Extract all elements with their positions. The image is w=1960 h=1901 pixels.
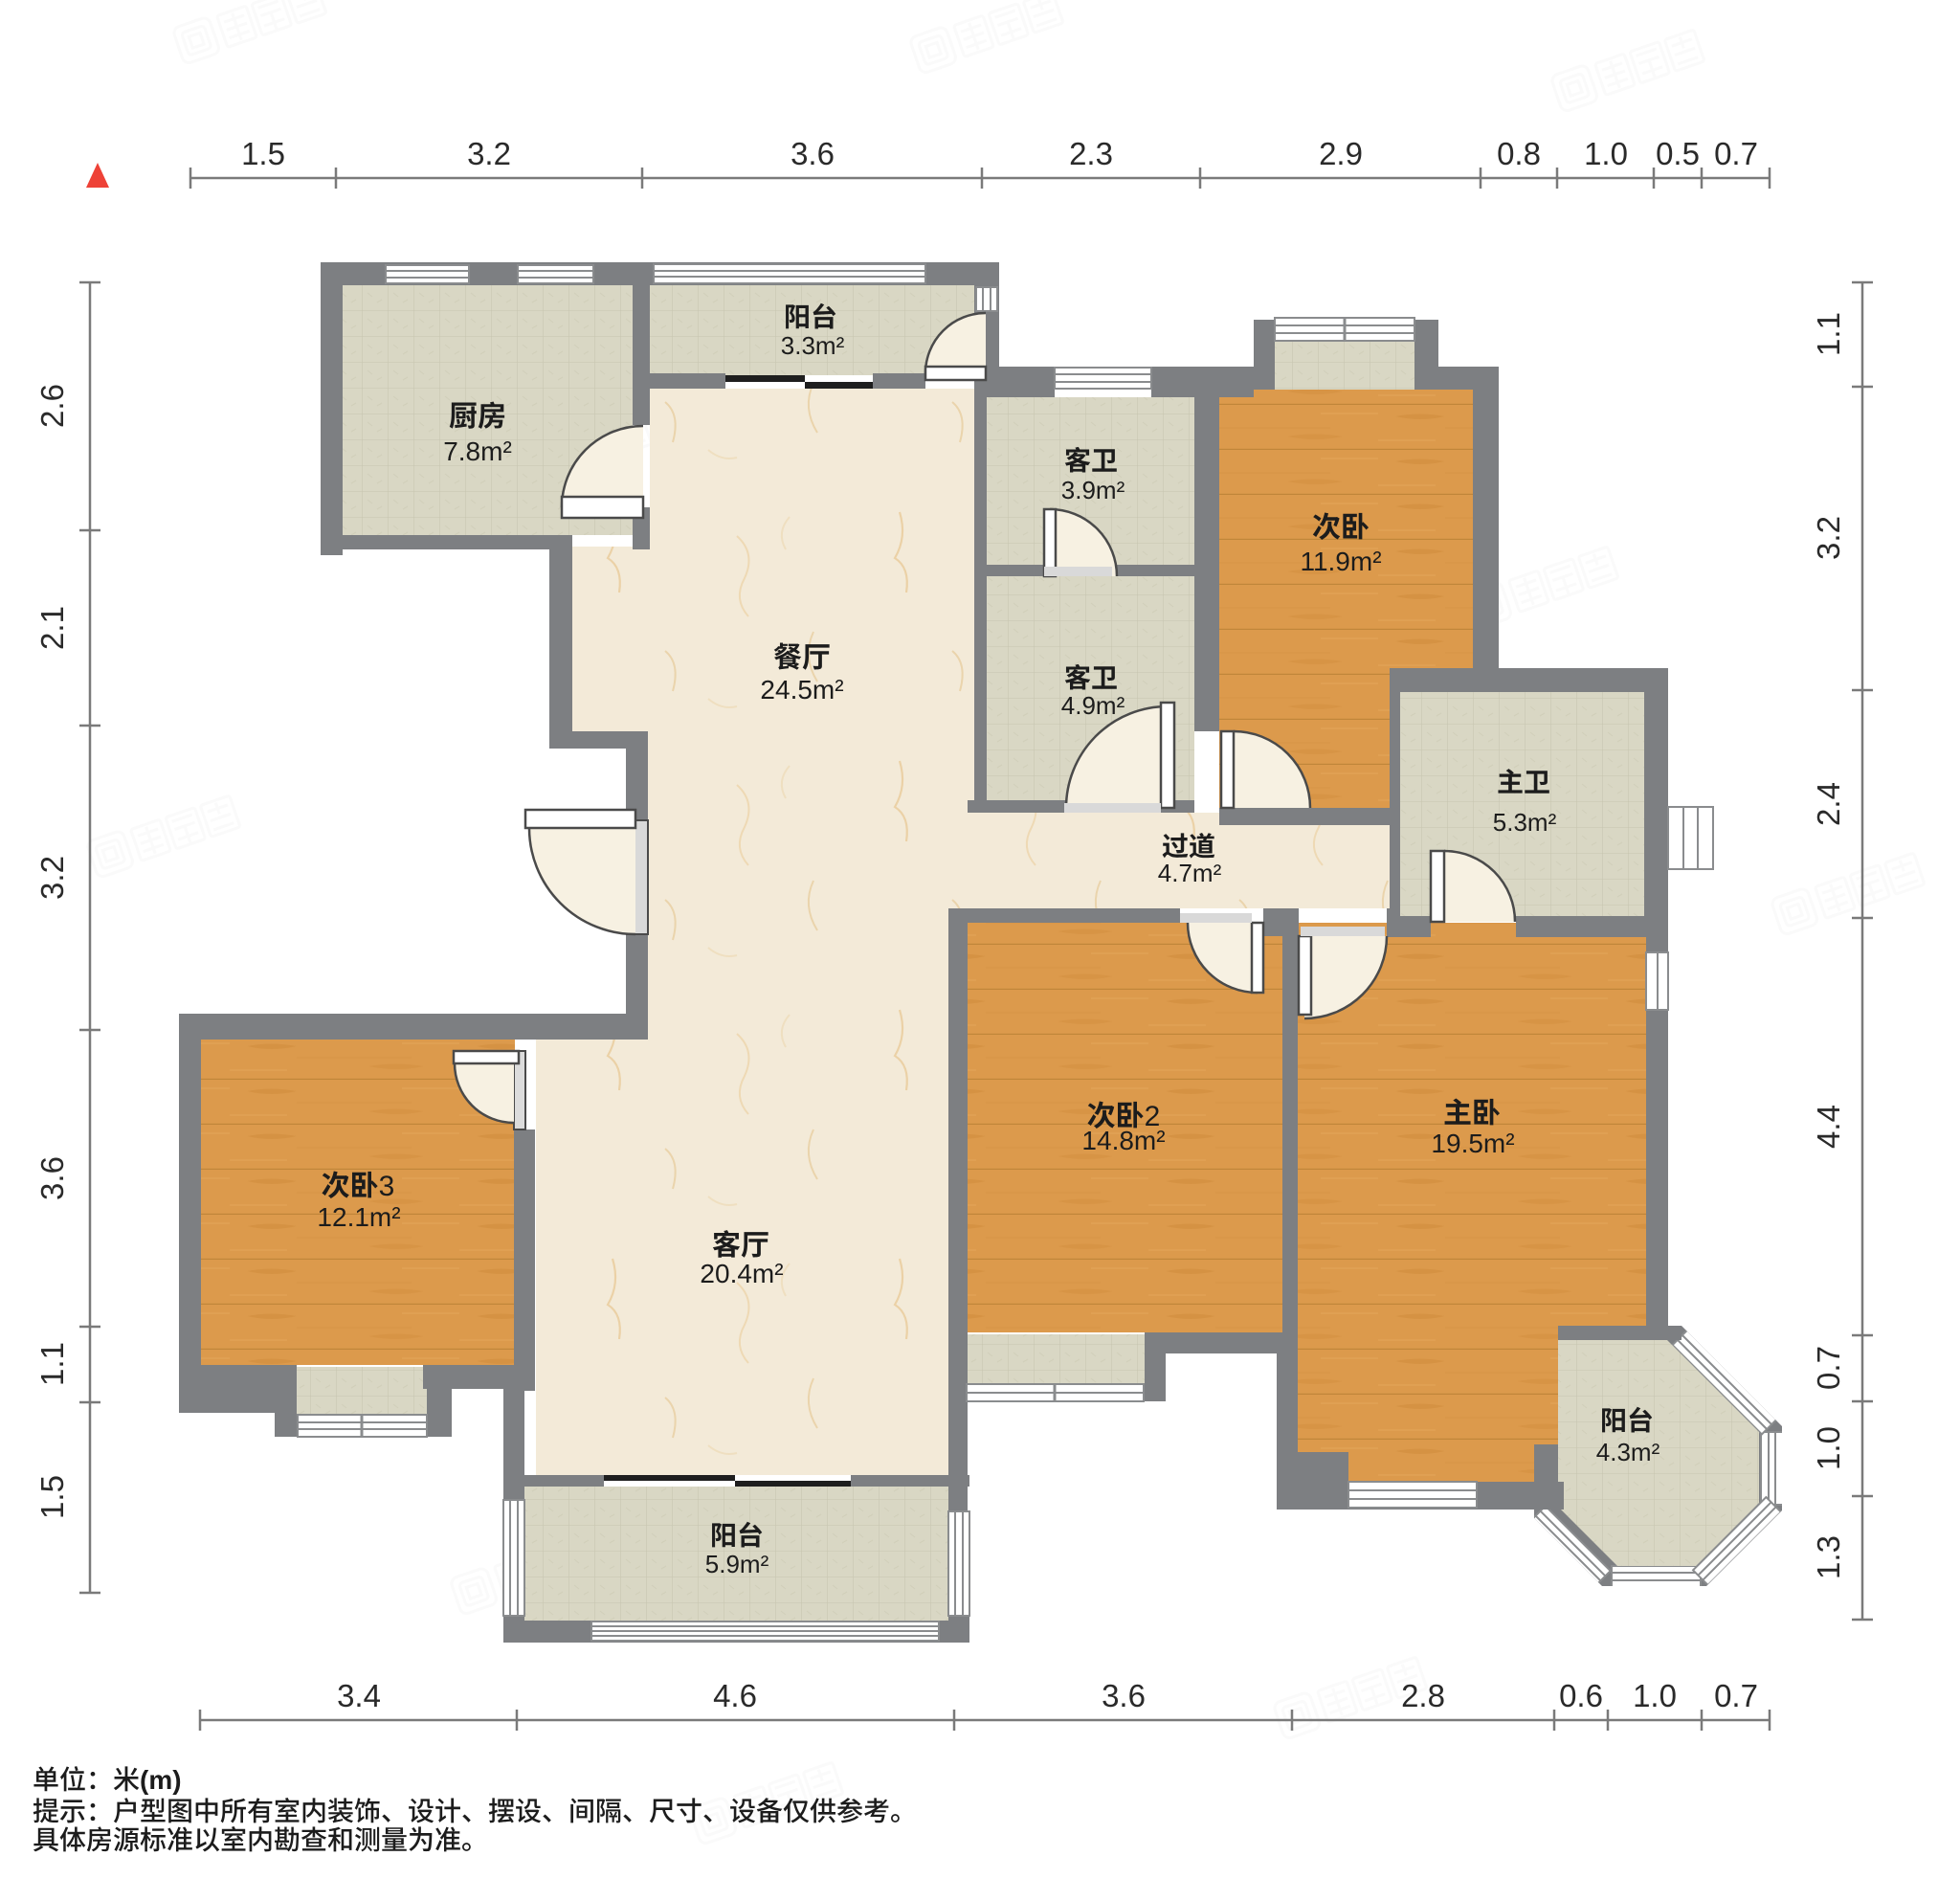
svg-text:5.9m²: 5.9m² [705,1550,769,1578]
svg-text:1.0: 1.0 [1811,1426,1846,1470]
svg-text:3.2: 3.2 [1811,516,1846,560]
svg-text:14.8m²: 14.8m² [1081,1126,1165,1155]
svg-text:餐厅: 餐厅 [773,634,831,676]
svg-text:0.7: 0.7 [1714,136,1758,171]
svg-text:4.9m²: 4.9m² [1061,691,1125,720]
svg-text:1.3: 1.3 [1811,1535,1846,1579]
svg-text:0.7: 0.7 [1714,1678,1758,1713]
svg-text:阳台: 阳台 [710,1515,764,1554]
svg-text:19.5m²: 19.5m² [1431,1129,1514,1158]
svg-text:7.8m²: 7.8m² [443,436,512,466]
svg-text:2.1: 2.1 [34,606,70,650]
svg-text:主卫: 主卫 [1497,762,1550,800]
svg-text:11.9m²: 11.9m² [1300,547,1381,576]
svg-text:厨房: 厨房 [449,392,506,435]
svg-text:1.5: 1.5 [34,1475,70,1519]
svg-text:具体房源标准以室内勘查和测量为准。: 具体房源标准以室内勘查和测量为准。 [33,1820,488,1858]
svg-text:4.7m²: 4.7m² [1158,859,1222,887]
svg-text:客卫: 客卫 [1064,440,1118,479]
svg-text:1.0: 1.0 [1584,136,1628,171]
svg-text:阳台: 阳台 [1600,1400,1654,1439]
svg-text:1.1: 1.1 [1811,312,1846,356]
svg-text:4.6: 4.6 [713,1678,757,1713]
svg-text:1.1: 1.1 [34,1342,70,1386]
svg-text:2.9: 2.9 [1319,136,1363,171]
svg-text:0.8: 0.8 [1497,136,1541,171]
svg-text:3.2: 3.2 [34,856,70,900]
svg-text:阳台: 阳台 [784,297,837,335]
svg-text:3.9m²: 3.9m² [1061,476,1125,504]
svg-text:3.6: 3.6 [791,136,835,171]
svg-text:客厅: 客厅 [712,1221,769,1264]
svg-text:次卧: 次卧 [1312,503,1370,546]
svg-text:次卧3: 次卧3 [322,1162,395,1204]
svg-text:4.4: 4.4 [1811,1105,1846,1149]
svg-text:12.1m²: 12.1m² [317,1202,400,1232]
svg-text:主卧: 主卧 [1443,1089,1501,1131]
svg-text:2.4: 2.4 [1811,782,1846,826]
svg-text:3.4: 3.4 [337,1678,381,1713]
svg-text:2.3: 2.3 [1069,136,1113,171]
svg-text:3.6: 3.6 [1102,1678,1146,1713]
svg-text:0.7: 0.7 [1811,1346,1846,1390]
svg-text:2.8: 2.8 [1401,1678,1445,1713]
svg-text:1.0: 1.0 [1633,1678,1677,1713]
svg-text:0.6: 0.6 [1559,1678,1603,1713]
svg-text:24.5m²: 24.5m² [760,675,843,704]
svg-text:5.3m²: 5.3m² [1493,808,1557,837]
svg-text:客卫: 客卫 [1064,658,1118,696]
svg-text:20.4m²: 20.4m² [700,1259,783,1288]
svg-text:0.5: 0.5 [1656,136,1700,171]
svg-text:4.3m²: 4.3m² [1596,1438,1660,1466]
svg-text:2.6: 2.6 [34,384,70,428]
svg-text:3.3m²: 3.3m² [781,331,845,360]
svg-text:3.2: 3.2 [467,136,511,171]
svg-text:1.5: 1.5 [241,136,285,171]
svg-text:3.6: 3.6 [34,1156,70,1200]
